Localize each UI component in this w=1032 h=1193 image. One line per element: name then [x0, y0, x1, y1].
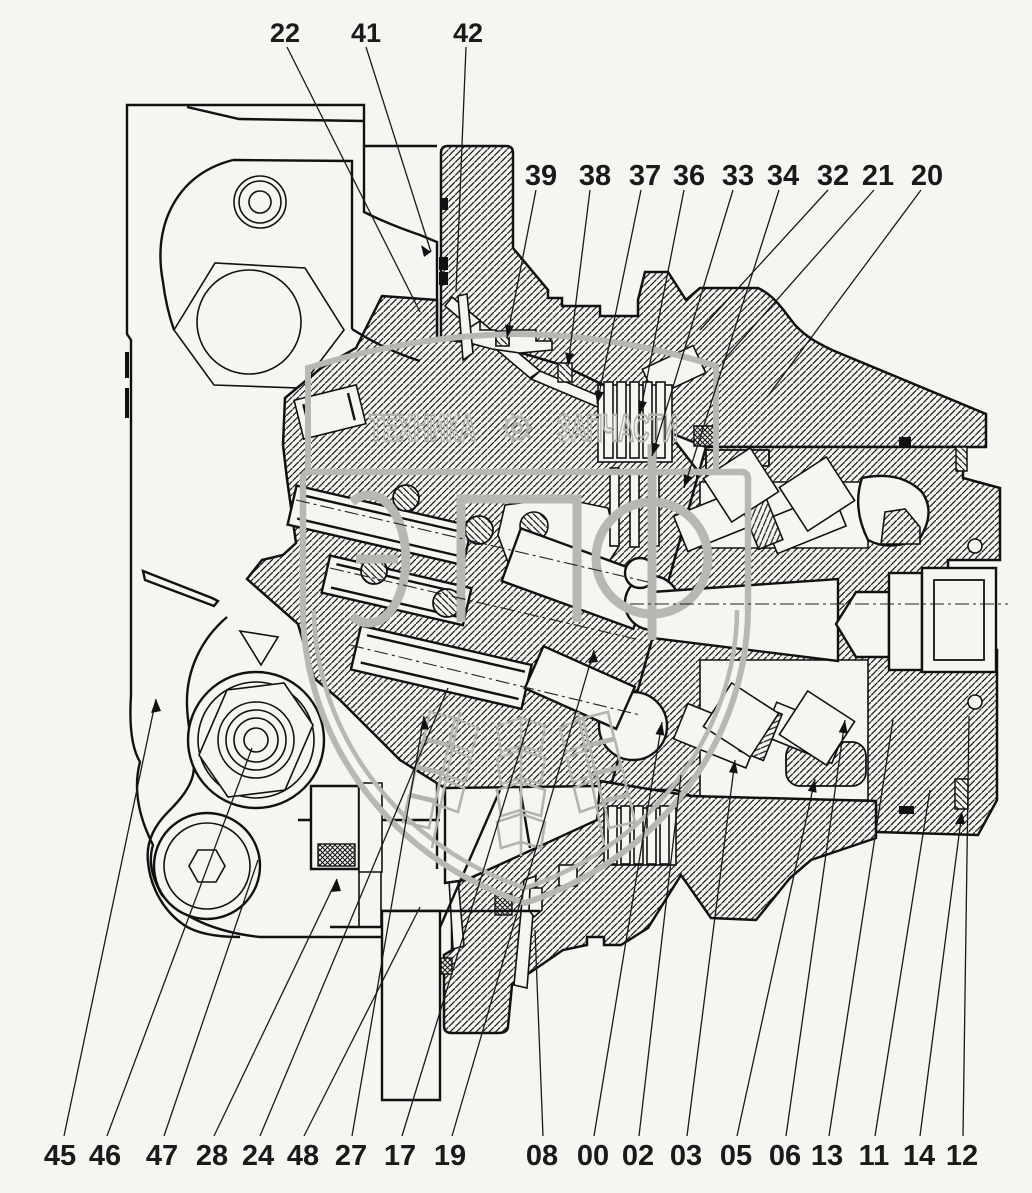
svg-text:ТЕХНИКА: ТЕХНИКА [369, 408, 476, 450]
svg-text:22: 22 [270, 18, 300, 48]
svg-text:00: 00 [577, 1140, 609, 1172]
svg-text:14: 14 [903, 1140, 935, 1172]
svg-text:13: 13 [811, 1140, 843, 1172]
svg-text:38: 38 [579, 160, 611, 192]
svg-text:19: 19 [434, 1140, 466, 1172]
svg-text:24: 24 [242, 1140, 274, 1172]
svg-text:02: 02 [622, 1140, 654, 1172]
svg-text:27: 27 [335, 1140, 367, 1172]
svg-text:45: 45 [44, 1140, 76, 1172]
svg-text:33: 33 [722, 160, 754, 192]
svg-text:05: 05 [720, 1140, 752, 1172]
svg-text:20: 20 [911, 160, 943, 192]
svg-text:39: 39 [525, 160, 557, 192]
svg-text:08: 08 [526, 1140, 558, 1172]
svg-text:32: 32 [817, 160, 849, 192]
svg-text:41: 41 [351, 18, 381, 48]
svg-text:06: 06 [769, 1140, 801, 1172]
svg-text:28: 28 [196, 1140, 228, 1172]
svg-text:47: 47 [146, 1140, 178, 1172]
svg-text:37: 37 [629, 160, 661, 192]
svg-text:21: 21 [862, 160, 894, 192]
svg-text:17: 17 [384, 1140, 416, 1172]
svg-text:12: 12 [946, 1140, 978, 1172]
svg-text:03: 03 [670, 1140, 702, 1172]
svg-text:36: 36 [673, 160, 705, 192]
svg-text:34: 34 [767, 160, 799, 192]
svg-text:48: 48 [287, 1140, 319, 1172]
svg-text:11: 11 [859, 1140, 890, 1172]
svg-text:42: 42 [453, 18, 483, 48]
svg-text:46: 46 [89, 1140, 121, 1172]
